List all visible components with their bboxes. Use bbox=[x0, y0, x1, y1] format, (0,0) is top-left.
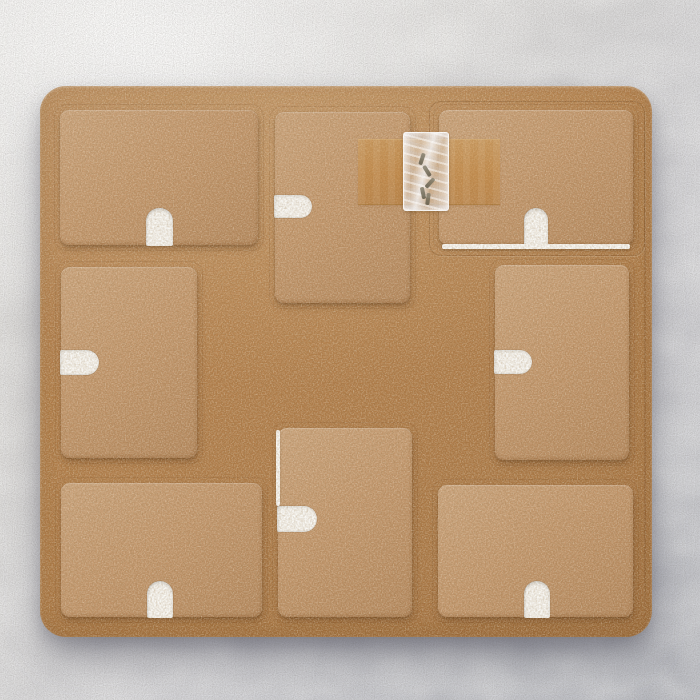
panel-bottom-right bbox=[438, 485, 633, 617]
keyhole-slot bbox=[494, 350, 532, 374]
panel-middle-left bbox=[61, 267, 197, 458]
score-line-right bbox=[644, 102, 646, 626]
panel-top-left bbox=[60, 110, 258, 245]
white-liner-bottom-edge bbox=[442, 244, 630, 249]
screw-3 bbox=[424, 177, 435, 189]
keyhole-slot bbox=[524, 208, 548, 246]
panel-bottom-middle bbox=[278, 428, 412, 617]
screw-1 bbox=[418, 153, 426, 166]
keyhole-slot bbox=[147, 581, 173, 618]
clear-screw-bag bbox=[403, 132, 449, 211]
screw-5 bbox=[425, 193, 431, 205]
keyhole-slot bbox=[277, 506, 317, 532]
keyhole-slot bbox=[60, 350, 99, 375]
white-liner-left-edge bbox=[276, 430, 280, 506]
panel-bottom-left bbox=[61, 483, 262, 617]
panel-middle-right bbox=[495, 265, 629, 460]
photo-stage bbox=[0, 0, 700, 700]
keyhole-slot bbox=[146, 208, 173, 246]
keyhole-slot bbox=[524, 581, 550, 618]
screw-2 bbox=[422, 165, 432, 177]
keyhole-slot bbox=[274, 195, 312, 218]
